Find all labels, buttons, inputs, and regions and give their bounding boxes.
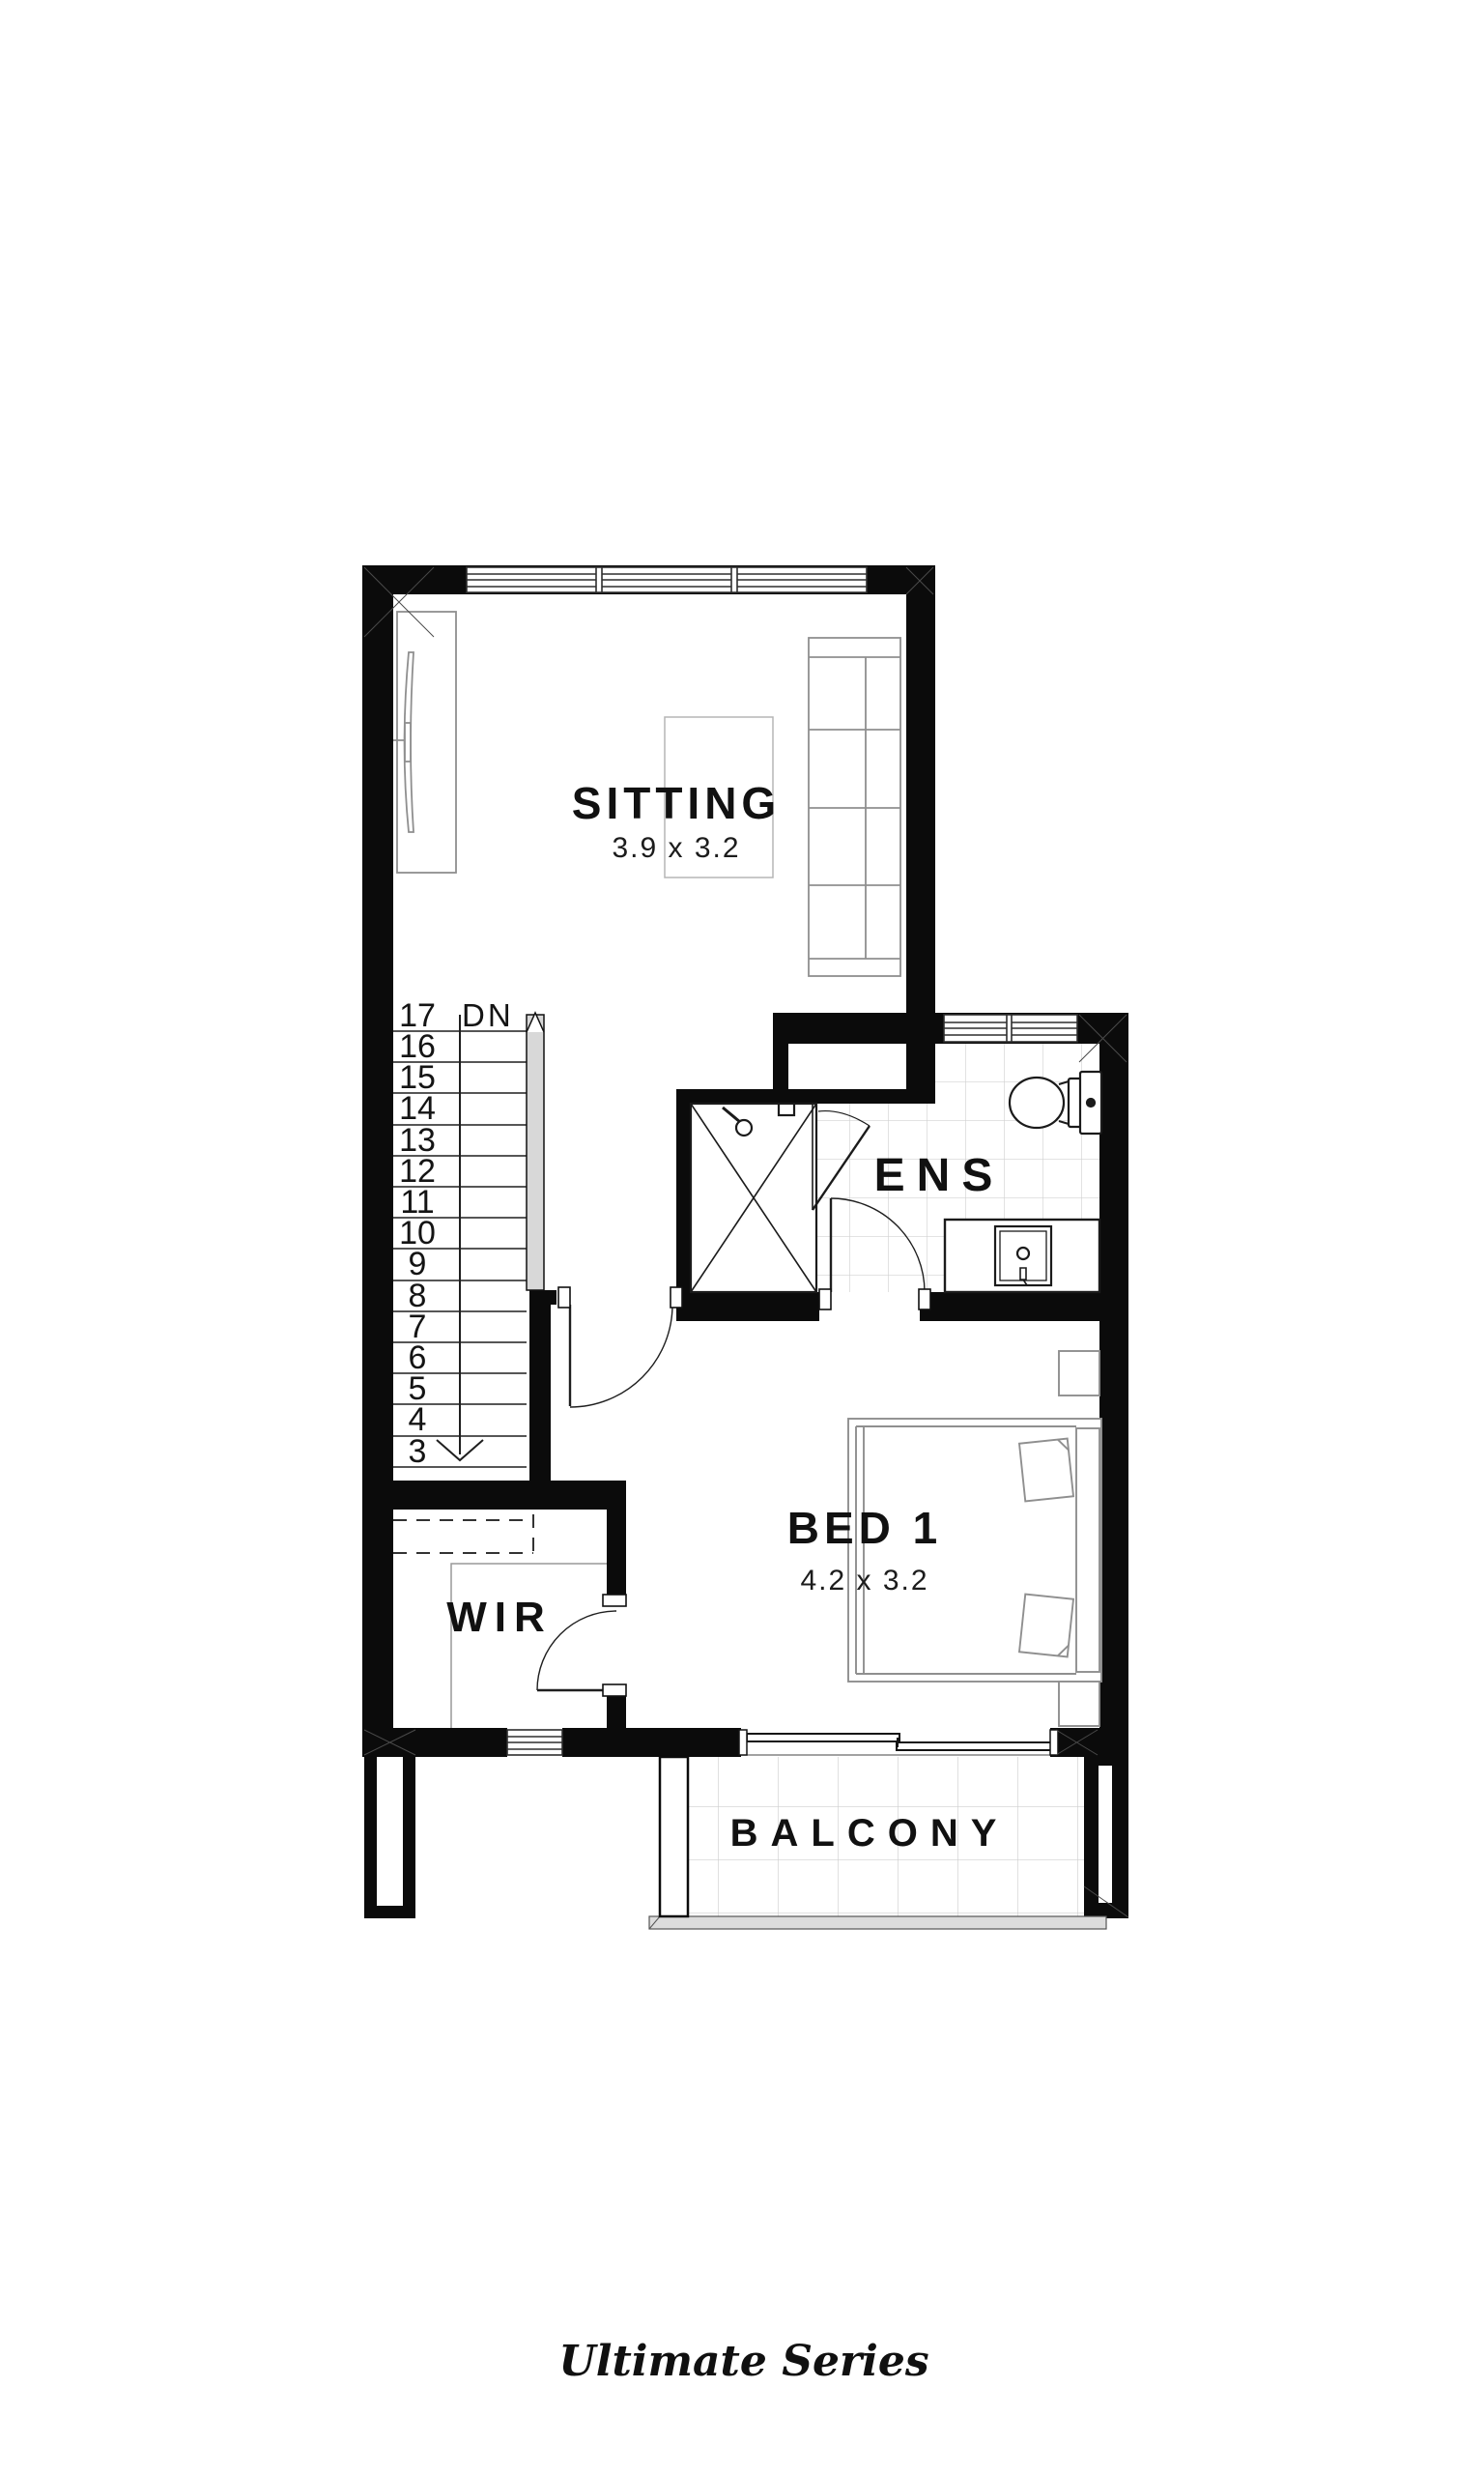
door-jamb — [1050, 1730, 1058, 1755]
wir-label: WIR — [446, 1594, 553, 1641]
balcony-label: BALCONY — [730, 1812, 1010, 1855]
robe-rails — [393, 1514, 533, 1559]
dn-label: DN — [462, 997, 514, 1033]
robe-boundary — [451, 1564, 607, 1728]
window-mullion — [731, 567, 737, 592]
step-number: 3 — [409, 1433, 427, 1470]
bedside-table — [1059, 1351, 1099, 1395]
bed1-dims: 4.2 x 3.2 — [800, 1565, 928, 1597]
hall-door — [570, 1305, 672, 1407]
brand-script: Ultimate Series — [558, 2337, 928, 2386]
floor-plan-drawing: 17 16 15 14 13 12 11 10 9 8 7 6 5 4 3 DN — [0, 0, 1484, 2474]
window-mullion — [596, 567, 602, 592]
floor-plan-page: 17 16 15 14 13 12 11 10 9 8 7 6 5 4 3 DN — [0, 0, 1484, 2474]
window-mullion — [1007, 1015, 1012, 1042]
vanity — [945, 1220, 1099, 1292]
sofa — [809, 638, 900, 976]
door-jamb — [739, 1730, 747, 1755]
sliding-door — [739, 1730, 1058, 1755]
ens-label: ENS — [874, 1150, 1005, 1201]
handrail — [527, 1013, 544, 1290]
sitting-label: SITTING — [572, 778, 781, 828]
shower-mixer — [779, 1104, 794, 1115]
balustrade — [649, 1916, 1106, 1929]
vanity-tap — [1017, 1248, 1029, 1259]
bedside-table — [1059, 1682, 1099, 1726]
balcony-column-slot — [1098, 1765, 1113, 1904]
headboard — [1076, 1428, 1099, 1672]
sitting-dims: 3.9 x 3.2 — [612, 832, 740, 864]
stair-travel-arrow — [437, 1015, 483, 1460]
pillow — [1019, 1595, 1073, 1657]
bed1-label: BED 1 — [787, 1503, 942, 1553]
pillow — [1019, 1439, 1073, 1502]
balcony-column — [660, 1757, 688, 1916]
stairs: 17 16 15 14 13 12 11 10 9 8 7 6 5 4 3 DN — [393, 997, 544, 1470]
